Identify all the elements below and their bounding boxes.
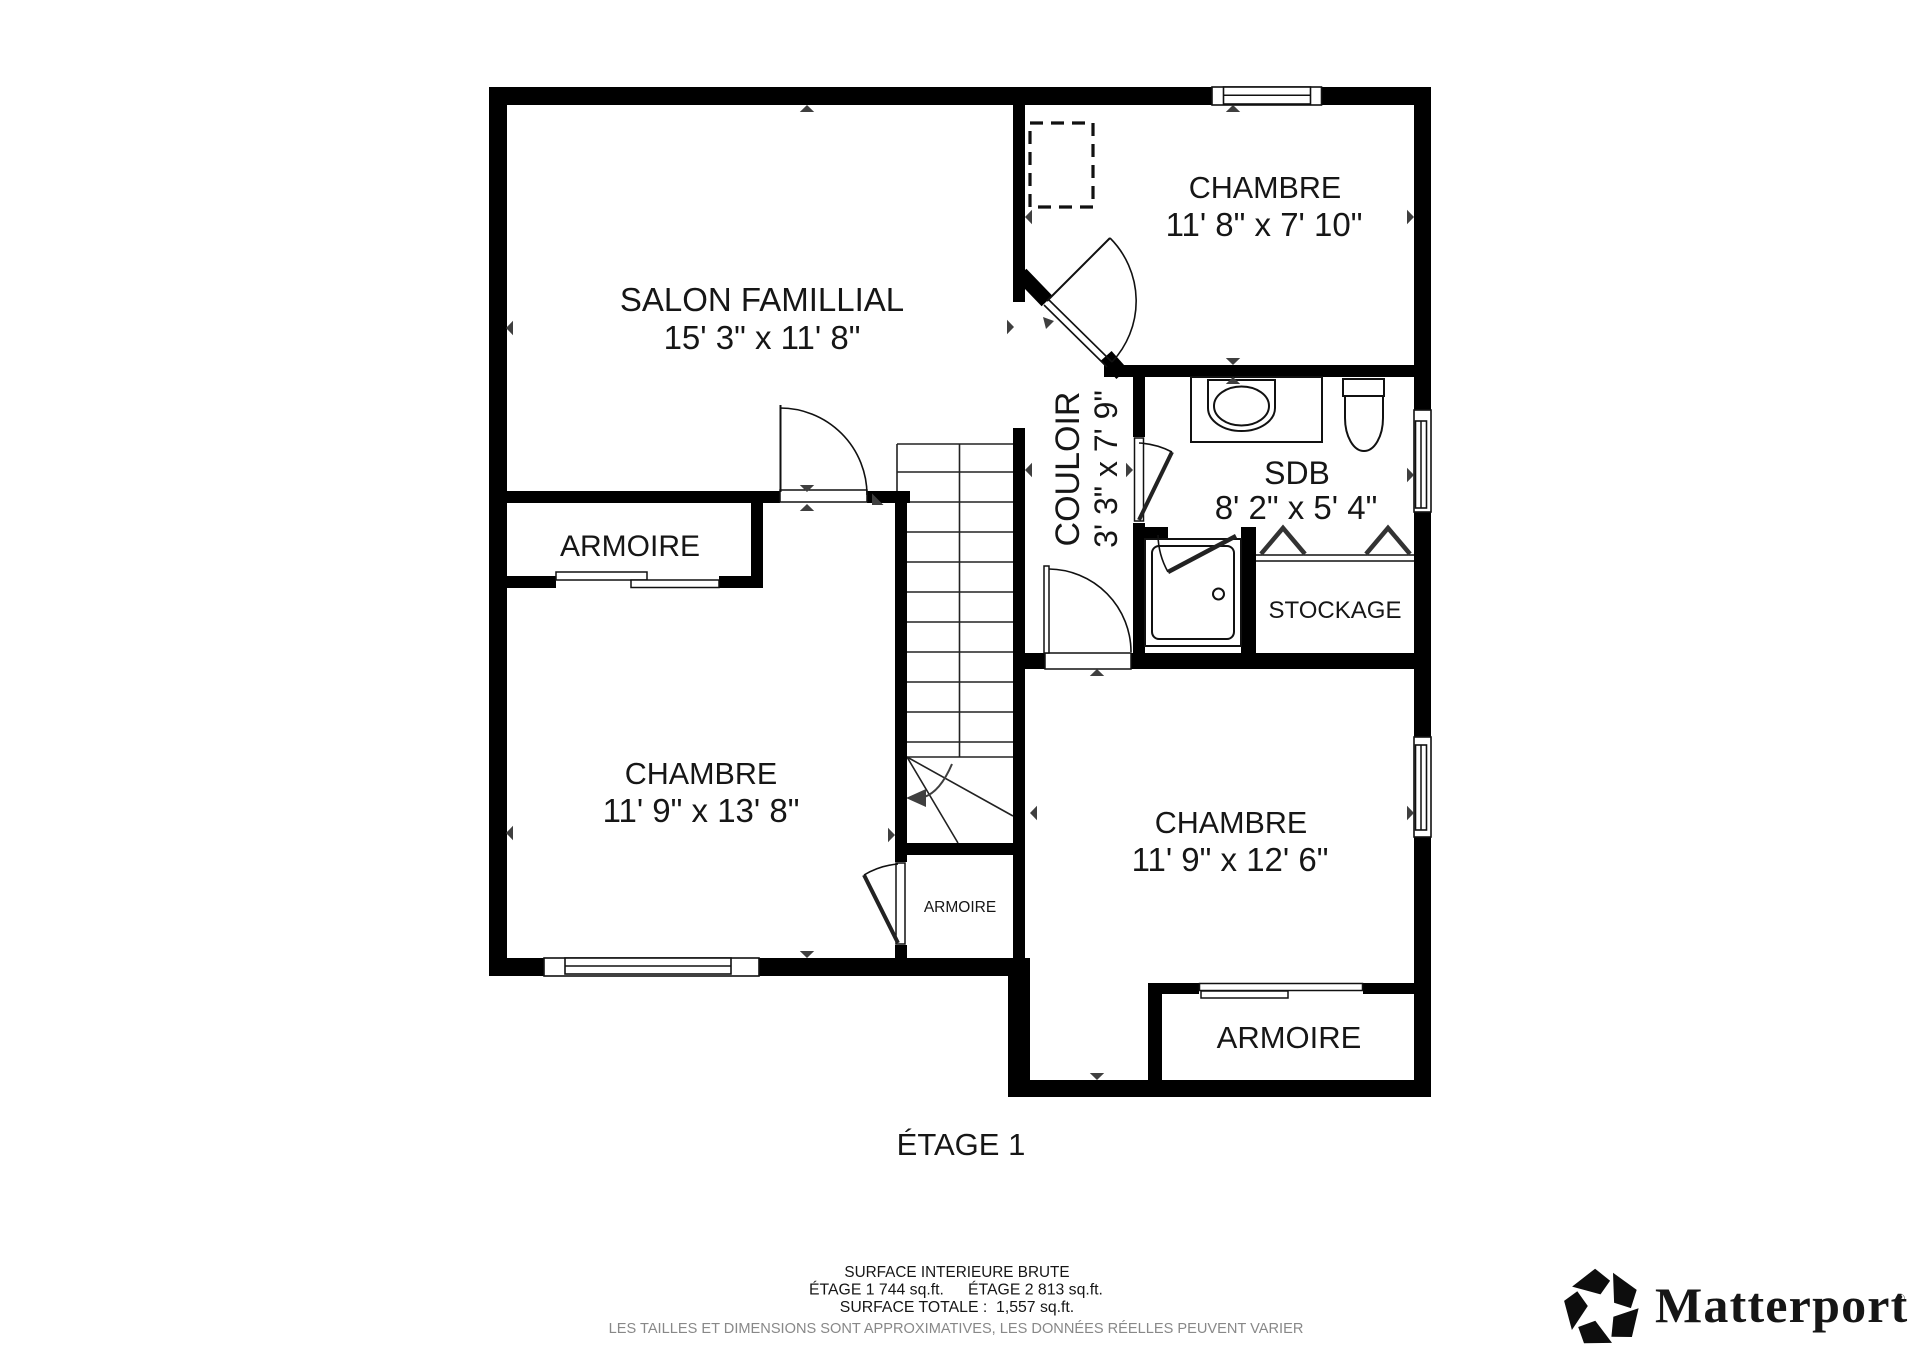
svg-text:ARMOIRE: ARMOIRE (924, 899, 996, 916)
svg-text:ARMOIRE: ARMOIRE (560, 530, 700, 563)
svg-text:STOCKAGE: STOCKAGE (1269, 597, 1402, 624)
svg-text:ÉTAGE 1 744 sq.ft.: ÉTAGE 1 744 sq.ft. (809, 1280, 944, 1299)
svg-text:8' 2" x 5' 4": 8' 2" x 5' 4" (1215, 489, 1378, 526)
svg-text:15' 3" x 11' 8": 15' 3" x 11' 8" (664, 319, 861, 356)
svg-text:SALON FAMILLIAL: SALON FAMILLIAL (620, 281, 904, 318)
svg-text:11' 8" x 7' 10": 11' 8" x 7' 10" (1166, 206, 1363, 243)
svg-text:ÉTAGE 2 813 sq.ft.: ÉTAGE 2 813 sq.ft. (968, 1280, 1103, 1299)
svg-text:3' 3" x 7' 9": 3' 3" x 7' 9" (1088, 390, 1124, 548)
svg-text:LES TAILLES ET DIMENSIONS SONT: LES TAILLES ET DIMENSIONS SONT APPROXIMA… (609, 1320, 1304, 1337)
svg-text:ÉTAGE 1: ÉTAGE 1 (897, 1127, 1026, 1162)
svg-text:SURFACE INTERIEURE BRUTE: SURFACE INTERIEURE BRUTE (844, 1264, 1069, 1281)
svg-text:Matterport: Matterport (1655, 1277, 1909, 1333)
svg-text:SDB: SDB (1264, 455, 1330, 491)
svg-text:CHAMBRE: CHAMBRE (625, 757, 778, 791)
svg-text:COULOIR: COULOIR (1049, 392, 1087, 547)
svg-text:ARMOIRE: ARMOIRE (1217, 1020, 1362, 1055)
svg-text:11' 9" x 13' 8": 11' 9" x 13' 8" (603, 792, 800, 829)
svg-text:®: ® (1896, 1291, 1905, 1305)
svg-text:CHAMBRE: CHAMBRE (1155, 806, 1308, 840)
svg-text:11' 9" x 12' 6": 11' 9" x 12' 6" (1132, 841, 1329, 878)
svg-text:SURFACE TOTALE : 1,557 sq.ft.: SURFACE TOTALE : 1,557 sq.ft. (840, 1299, 1074, 1316)
svg-text:CHAMBRE: CHAMBRE (1189, 171, 1342, 205)
